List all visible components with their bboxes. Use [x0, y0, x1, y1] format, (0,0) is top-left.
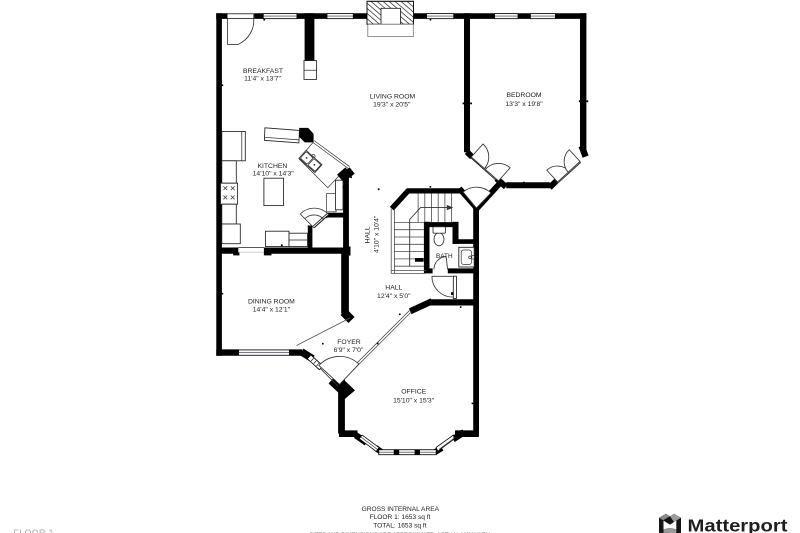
- svg-text:14'4" x 12'1": 14'4" x 12'1": [253, 306, 291, 313]
- svg-text:12'4" x 5'0": 12'4" x 5'0": [377, 293, 411, 300]
- svg-text:15'10" x 15'3": 15'10" x 15'3": [393, 397, 435, 404]
- svg-text:HALL: HALL: [364, 226, 371, 243]
- svg-text:DINING ROOM: DINING ROOM: [248, 299, 295, 306]
- svg-text:14'10" x 14'3": 14'10" x 14'3": [253, 171, 295, 178]
- svg-text:FOYER: FOYER: [337, 339, 361, 346]
- svg-text:TOTAL: 1653 sq ft: TOTAL: 1653 sq ft: [373, 522, 426, 529]
- svg-text:HALL: HALL: [385, 284, 402, 291]
- svg-text:19'3" x 20'5": 19'3" x 20'5": [373, 102, 411, 109]
- svg-text:BATH: BATH: [436, 253, 453, 260]
- svg-text:11'4" x 13'7": 11'4" x 13'7": [244, 76, 281, 83]
- svg-text:GROSS INTERNAL AREA: GROSS INTERNAL AREA: [362, 506, 440, 513]
- svg-text:BREAKFAST: BREAKFAST: [243, 68, 283, 75]
- svg-text:LIVING ROOM: LIVING ROOM: [370, 93, 416, 100]
- svg-text:FLOOR 1: FLOOR 1: [14, 528, 54, 533]
- svg-text:Matterport: Matterport: [688, 515, 788, 533]
- svg-text:FLOOR 1: 1653 sq ft: FLOOR 1: 1653 sq ft: [370, 514, 431, 521]
- svg-text:13'3" x 19'8": 13'3" x 19'8": [505, 101, 543, 108]
- svg-text:6'9" x 7'0": 6'9" x 7'0": [334, 347, 364, 354]
- svg-text:KITCHEN: KITCHEN: [257, 163, 287, 170]
- svg-text:BEDROOM: BEDROOM: [506, 92, 541, 99]
- svg-text:4'10" x 10'4": 4'10" x 10'4": [373, 215, 380, 253]
- svg-text:OFFICE: OFFICE: [401, 388, 426, 395]
